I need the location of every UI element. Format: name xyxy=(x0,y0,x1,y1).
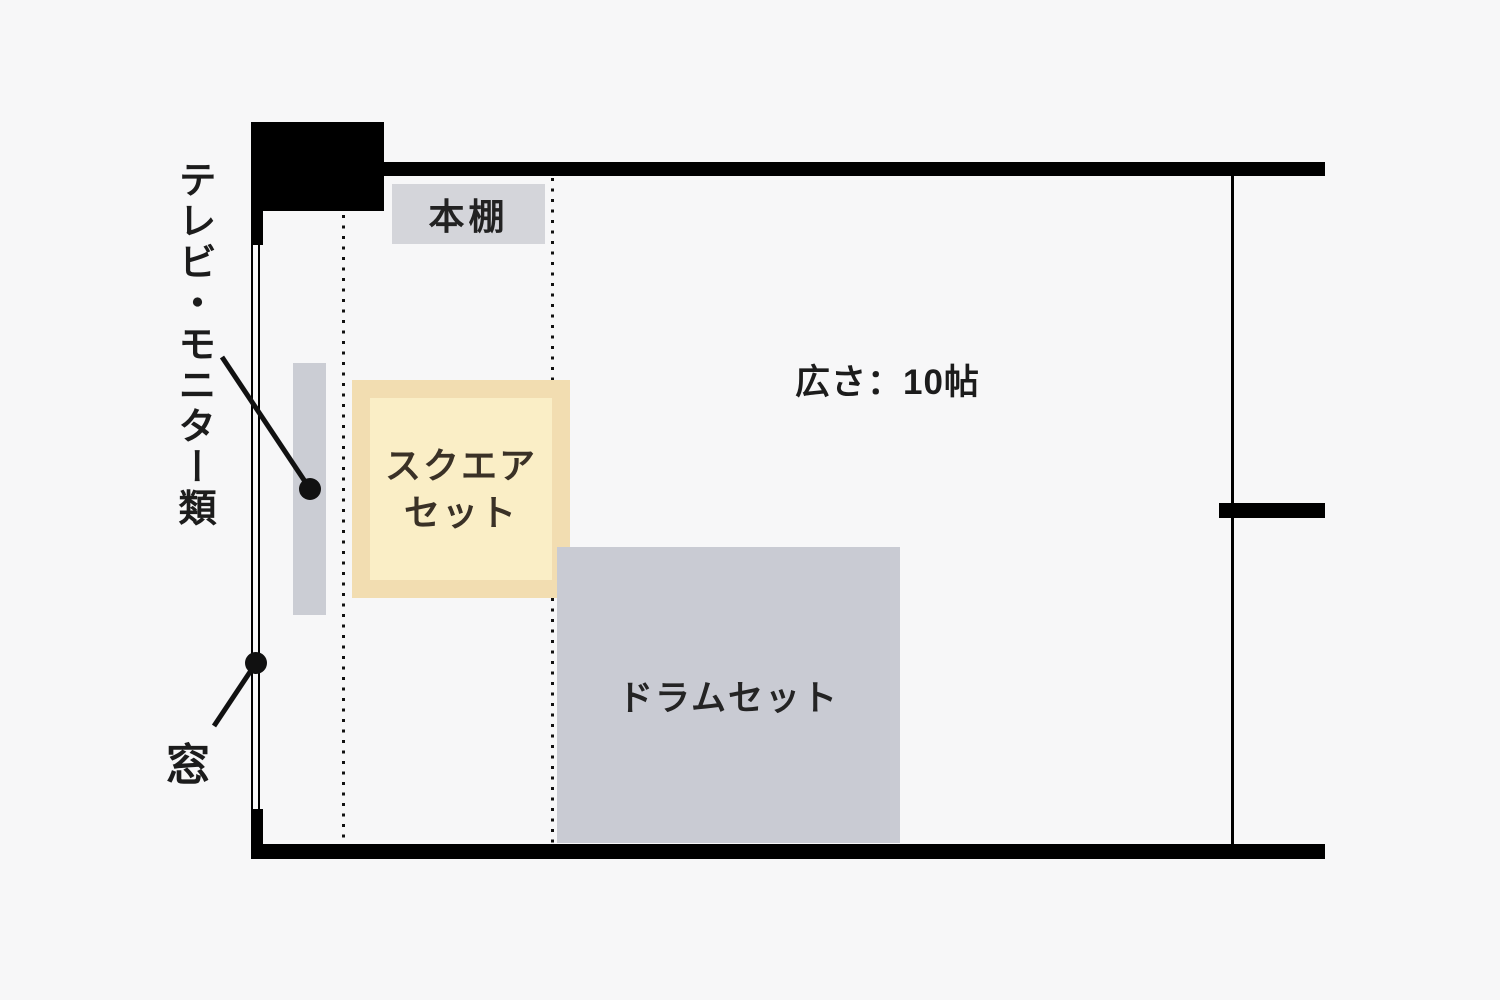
square-set-box: スクエア セット xyxy=(352,380,570,598)
drum-set-box: ドラムセット xyxy=(557,547,900,843)
window-bottom-cap xyxy=(251,809,263,844)
tv-monitor-unit xyxy=(293,363,326,615)
leader-line-window xyxy=(214,663,256,726)
right-wall-stub xyxy=(1219,503,1325,518)
window-double-line xyxy=(251,245,260,809)
bookshelf-label: 本棚 xyxy=(428,188,508,240)
bottom-wall xyxy=(251,844,1325,859)
square-set-label-line2: セット xyxy=(404,489,518,536)
room-size-label: 広さ：10帖 xyxy=(795,354,980,405)
window-label: 窓 xyxy=(166,729,210,793)
drum-set-label: ドラムセット xyxy=(618,670,839,721)
square-set-label-line1: スクエア xyxy=(385,442,537,489)
square-set-label: スクエア セット xyxy=(370,398,552,580)
floor-plan: スクエア セット ドラムセット 本棚 広さ：10帖 テレビ・モニター類 窓 xyxy=(0,0,1500,1000)
window-top-cap xyxy=(251,211,263,245)
top-wall xyxy=(384,162,1325,176)
bookshelf-box: 本棚 xyxy=(392,184,545,244)
entrance-block xyxy=(251,122,384,211)
tv-monitor-label: テレビ・モニター類 xyxy=(166,160,221,529)
dotted-guideline-left xyxy=(342,215,345,843)
